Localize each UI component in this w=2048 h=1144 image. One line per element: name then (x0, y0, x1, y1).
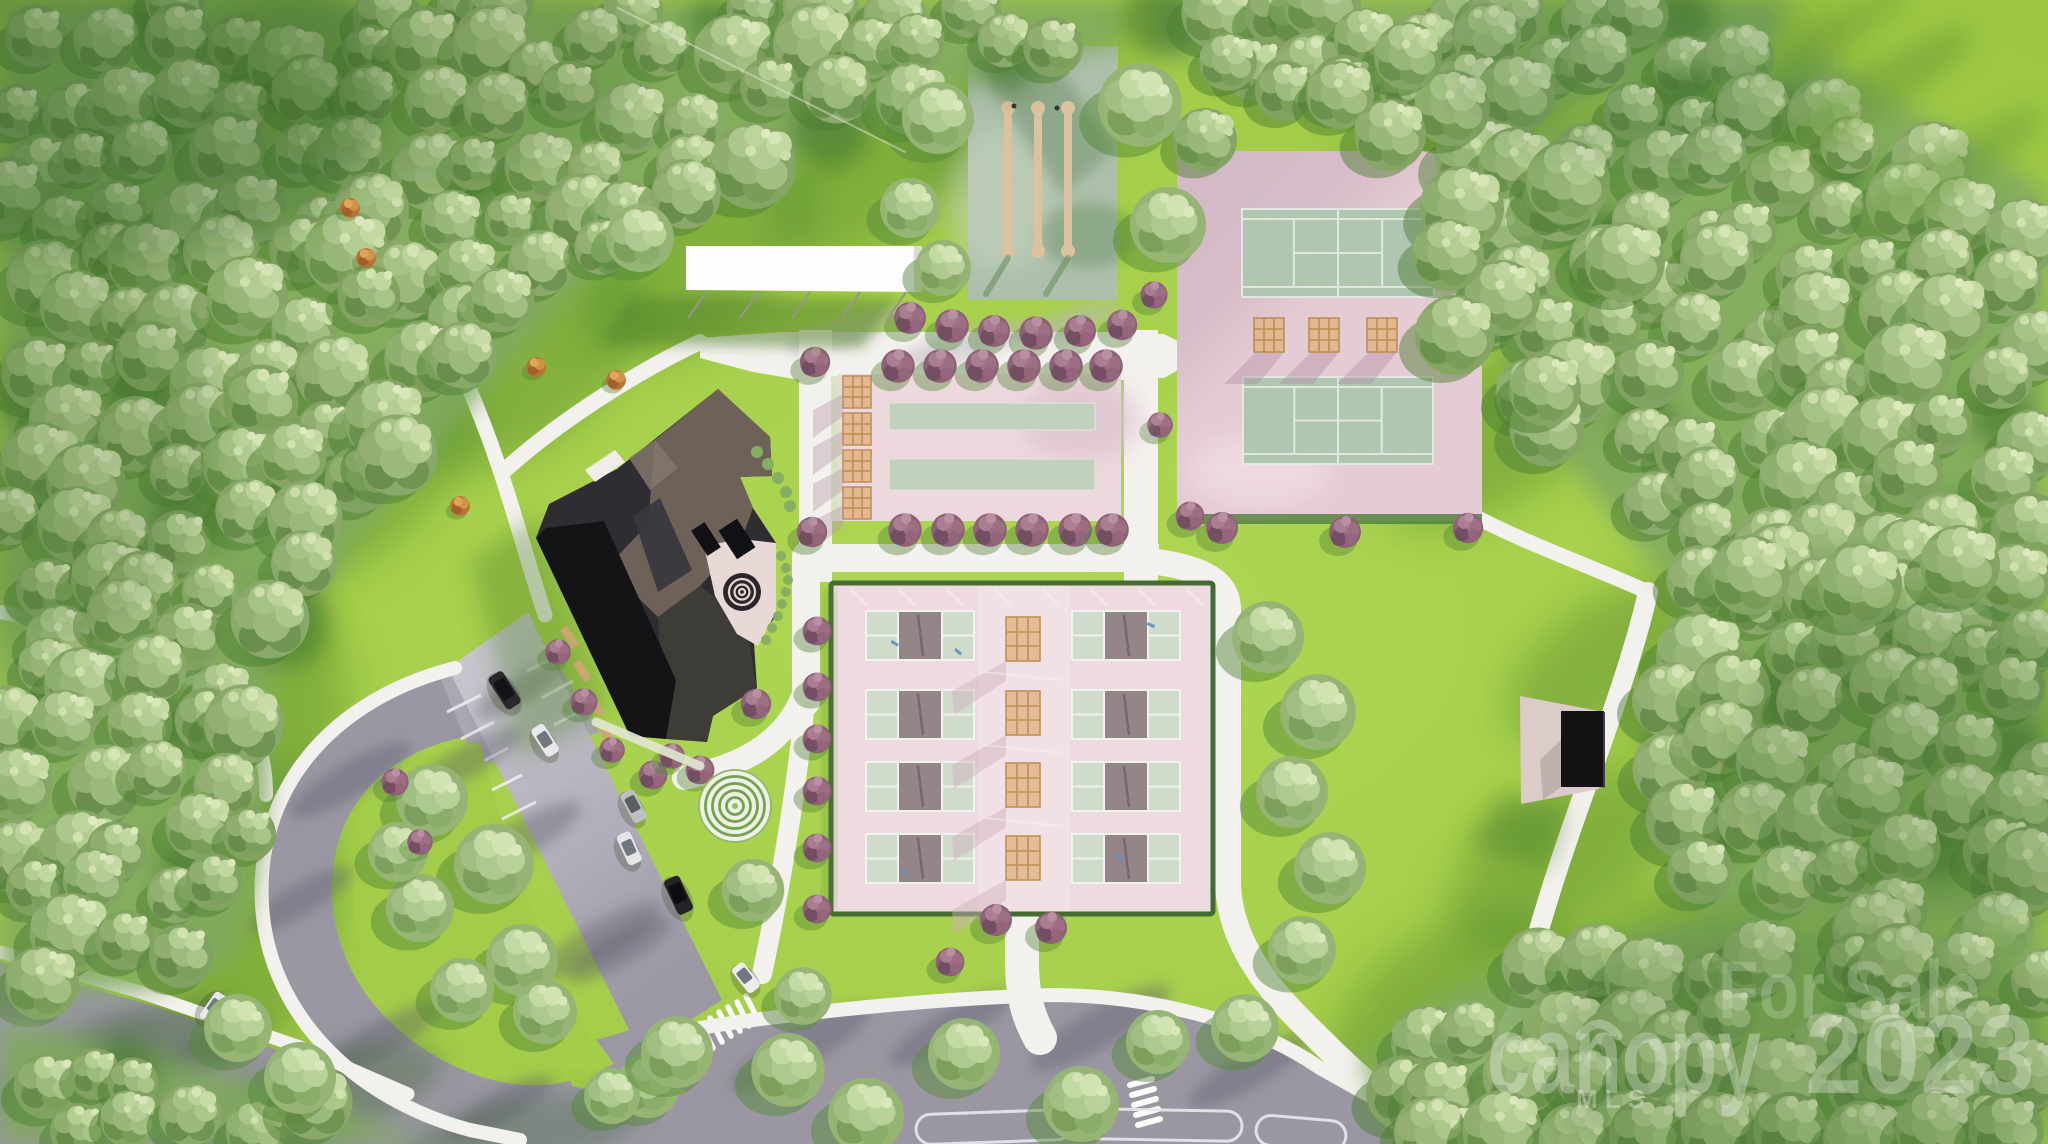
svg-text:MLS: MLS (1576, 1084, 1652, 1114)
svg-text:2023: 2023 (1805, 992, 2035, 1117)
